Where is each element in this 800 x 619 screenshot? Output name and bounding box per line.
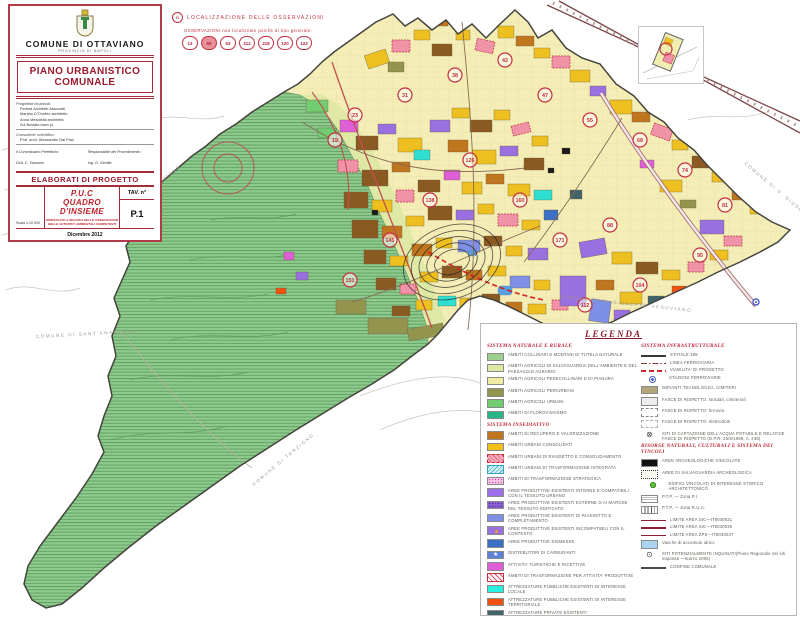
legend-swatch	[487, 364, 504, 373]
observation-marker: 138	[423, 193, 437, 207]
svg-text:19: 19	[332, 138, 338, 144]
legend-item: AMBITI AGRICOLI PEDECOLLINARI E DI PIANU…	[487, 376, 637, 385]
observation-marker: 47	[538, 88, 552, 102]
svg-text:81: 81	[722, 203, 728, 209]
legend-panel: LEGENDA SISTEMA NATURALE E RURALEAMBITI …	[480, 323, 797, 616]
legend-item: ⊗SITI DI CAPTAZIONE DELL'ACQUA POTABILE …	[641, 431, 793, 441]
legend-item: LIMITE AREA SIC—IT8030036	[641, 524, 793, 529]
svg-text:138: 138	[426, 198, 435, 204]
legend-item: Vasche di accumulo idrico	[641, 540, 793, 549]
legend-item-label: AREE PRODUTTIVE ESISTENTI ESTERNE O AI M…	[508, 500, 637, 510]
legend-swatch	[641, 470, 658, 479]
svg-text:88: 88	[607, 223, 613, 229]
legend-swatch	[487, 443, 504, 452]
legend-swatch	[487, 465, 504, 474]
legend-swatch	[487, 399, 504, 408]
legend-item: EDIFICI VINCOLATI DI INTERESSE STORICO A…	[641, 481, 793, 491]
legend-section-title: RISORSE NATURALI, CULTURALI E SISTEMA DE…	[641, 443, 793, 455]
legend-item-label: EDIFICI VINCOLATI DI INTERESSE STORICO A…	[669, 481, 794, 491]
legend-item-label: AMBITI DI RECUPERO E VALORIZZAZIONE	[508, 431, 599, 436]
observations-note: n LOCALIZZAZIONE DELLE OSSERVAZIONI OSSE…	[172, 12, 325, 50]
legend-item: AREE PRODUTTIVE ESISTENTI DI RIASSETTO E…	[487, 513, 637, 523]
legend-item: LINEA FERROVIARIA	[641, 360, 793, 365]
legend-item-label: ATTIVITA' TURISTICHE E RICETTIVE	[508, 562, 585, 567]
legend-item: FASCE DI RISPETTO: ferrovia	[641, 408, 793, 417]
legend-swatch	[487, 488, 504, 497]
legend-item: FASCE DI RISPETTO: stradali, cimiteriali	[641, 397, 793, 406]
legend-item-label: FASCE DI RISPETTO: ferrovia	[662, 408, 724, 413]
legend-item-label: ATTREZZATURE PUBBLICHE ESISTENTI DI INTE…	[508, 584, 637, 594]
legend-item-label: AMBITI COLLINARI E MONTANI DI TUTELA NAT…	[508, 352, 623, 357]
svg-text:68: 68	[637, 138, 643, 144]
rup-name: Ing. G. Gentile	[88, 161, 154, 165]
legend-item: AREE DI SALVAGUARDIA ARCHEOLOGICA	[641, 470, 793, 479]
legend-swatch	[641, 363, 666, 365]
legend-item-label: AMBITI DI TRASFORMAZIONE PER ATTIVITA' P…	[508, 573, 633, 578]
legend-item: AMBITI DI RECUPERO E VALORIZZAZIONE	[487, 431, 637, 440]
observation-marker: 74	[678, 163, 692, 177]
legend-item-label: P.T.P. — Zona P.I.	[662, 494, 698, 499]
observation-marker: 23	[348, 108, 362, 122]
rup-label: Responsabile del Procedimento :	[88, 150, 154, 154]
legend-item-label: AMBITI DI FLOROVIVAISMO	[508, 410, 567, 415]
legend-swatch	[487, 562, 504, 571]
observation-marker: 145	[383, 233, 397, 247]
legend-swatch	[487, 477, 504, 486]
title-block: COMUNE DI OTTAVIANO PROVINCIA DI NAPOLI …	[8, 4, 162, 242]
legend-swatch	[641, 495, 658, 504]
svg-text:126: 126	[466, 158, 475, 164]
observation-marker: 42	[498, 53, 512, 67]
legend-swatch	[641, 370, 666, 372]
legend-swatch	[649, 376, 656, 383]
observation-marker: 38	[448, 68, 462, 82]
legend-item: STATALE 268	[641, 352, 793, 357]
legend-swatch	[641, 420, 658, 429]
observation-chip: 212	[239, 36, 255, 50]
legend-item-label: SITI DI CAPTAZIONE DELL'ACQUA POTABILE E…	[662, 431, 793, 441]
svg-text:74: 74	[682, 168, 688, 174]
tav-number: P.1	[120, 200, 154, 228]
legend-swatch	[487, 353, 504, 362]
legend-item-label: P.T.P. — Zona R.U.A.	[662, 505, 705, 510]
legend-item-label: Vasche di accumulo idrico	[662, 540, 715, 545]
legend-item-label: LIMITE AREA SIC—IT8030021	[670, 517, 732, 522]
legend-swatch	[641, 386, 658, 395]
legend-item: AMBITI DI FLOROVIVAISMO	[487, 410, 637, 419]
legend-item-label: AREE ARCHEOLOGICHE VINCOLATE	[662, 458, 740, 463]
legend-item-label: AMBITI AGRICOLI PEDECOLLINARI E DI PIANU…	[508, 376, 614, 381]
legend-item-label: LIMITE AREA SIC—IT8030036	[670, 524, 732, 529]
svg-text:171: 171	[556, 238, 565, 244]
observation-chip: 13	[182, 36, 198, 50]
plan-title: PIANO URBANISTICO COMUNALE	[17, 61, 153, 93]
legend-item-label: STATALE 268	[670, 352, 698, 357]
legend-item-label: AMBITI DI TRASFORMAZIONE STRATEGICA	[508, 476, 601, 481]
legend-swatch	[487, 411, 504, 420]
scale-label: Scala 1:10.000	[16, 187, 44, 228]
observations-subtitle: OSSERVAZIONI non localizzate poiché di t…	[184, 28, 325, 33]
commune-title: COMUNE DI OTTAVIANO	[16, 39, 154, 49]
legend-swatch	[641, 535, 666, 536]
legend-swatch	[487, 551, 504, 560]
legend-swatch	[487, 514, 504, 523]
observation-marker: 88	[603, 218, 617, 232]
legend-item-label: FASCE DI RISPETTO: stradali, cimiteriali	[662, 397, 746, 402]
legend-item: ⊙SITI POTENZIALMENTE INQUINATI(Piano Reg…	[641, 551, 793, 561]
legend-item: AMBITI AGRICOLI PERIURBANI	[487, 388, 637, 397]
legend-item-label: SITI POTENZIALMENTE INQUINATI(Piano Regi…	[662, 551, 793, 561]
observation-marker: 55	[583, 113, 597, 127]
observation-marker: 160	[513, 193, 527, 207]
svg-text:31: 31	[402, 93, 408, 99]
commune-crest-icon	[16, 8, 154, 38]
legend-item: LIMITE AREA SIC—IT8030021	[641, 517, 793, 522]
legend-swatch	[487, 585, 504, 594]
observation-marker: 31	[398, 88, 412, 102]
legend-swatch	[487, 526, 504, 535]
legend-swatch	[641, 540, 658, 549]
legend-section-title: SISTEMA INSEDIATIVO	[487, 422, 637, 428]
legend-item: IMPIANTI TECNOLOGICI, CIMITERI	[641, 385, 793, 394]
legend-swatch	[641, 397, 658, 406]
legend-item: AREE PRODUTTIVE ESISTENTI ESTERNE O AI M…	[487, 500, 637, 510]
legend-item-label: AMBITI URBANI DI RIASSETTO E CONSOLIDAME…	[508, 454, 621, 459]
legend-item: AREE PRODUTTIVE ESISTENTI INCOMPATIBILI …	[487, 526, 637, 536]
observation-marker: 95	[693, 248, 707, 262]
elaborati-header: ELABORATI DI PROGETTO	[16, 171, 154, 187]
legend-title: LEGENDA	[585, 329, 642, 339]
legend-item-label: AREE DI SALVAGUARDIA ARCHEOLOGICA	[662, 470, 752, 475]
legend-item-label: AMBITI AGRICOLI URBANI	[508, 399, 564, 404]
legend-item-label: AREE PRODUTTIVE ESISTENTI INCOMPATIBILI …	[508, 526, 637, 536]
svg-text:42: 42	[502, 58, 508, 64]
role-name: Prof. arch. Alessandro Dal Piaz	[16, 137, 154, 142]
legend-swatch	[487, 454, 504, 463]
puc-code: P.U.C	[46, 189, 118, 198]
observation-marker: 151	[343, 273, 357, 287]
legend-item: P.T.P. — Zona P.I.	[641, 494, 793, 503]
legend-item: VIABILITA' DI PROGETTO	[641, 367, 793, 372]
legend-swatch	[641, 527, 666, 528]
legend-swatch	[487, 431, 504, 440]
svg-text:47: 47	[542, 93, 548, 99]
observation-marker: 126	[463, 153, 477, 167]
observation-marker: 81	[718, 198, 732, 212]
legend-item-label: AMBITI AGRICOLI PERIURBANI	[508, 388, 574, 393]
svg-text:104: 104	[636, 283, 645, 289]
revision-note: MODIFICATO A SEGUITO DELLE OSSERVAZIONI …	[46, 218, 118, 226]
legend-swatch	[487, 501, 504, 510]
observation-chip: 63	[220, 36, 236, 50]
legend-column-right: SISTEMA INFRASTRUTTURALESTATALE 268LINEA…	[641, 341, 793, 572]
legend-section-title: SISTEMA INFRASTRUTTURALE	[641, 343, 793, 349]
observation-chip: 122	[296, 36, 312, 50]
observation-marker: 19	[328, 133, 342, 147]
legend-swatch	[487, 377, 504, 386]
observations-title: LOCALIZZAZIONE DELLE OSSERVAZIONI	[187, 15, 325, 21]
observation-chip: 60	[201, 36, 217, 50]
legend-item-label: DISTRIBUTORI DI CARBURANTI	[508, 550, 576, 555]
legend-item-label: AREE PRODUTTIVE ESISTENTI DI RIASSETTO E…	[508, 513, 637, 523]
legend-item: DISTRIBUTORI DI CARBURANTI	[487, 550, 637, 559]
legend-item-label: IMPIANTI TECNOLOGICI, CIMITERI	[662, 385, 736, 390]
legend-swatch	[641, 459, 658, 468]
legend-item: AREE ARCHEOLOGICHE VINCOLATE	[641, 458, 793, 467]
svg-text:145: 145	[386, 238, 395, 244]
legend-swatch	[641, 506, 658, 515]
observation-badge-icon: n	[172, 12, 183, 23]
legend-item-label: LINEA FERROVIARIA	[670, 360, 714, 365]
legend-item-label: ATTREZZATURE PRIVATE ESISTENTI	[508, 610, 587, 615]
legend-item: AMBITI URBANI DI RIASSETTO E CONSOLIDAME…	[487, 454, 637, 463]
province-label: PROVINCIA DI NAPOLI	[16, 49, 154, 53]
legend-item: AMBITI URBANI DI TRASFORMAZIONE INTEGRAT…	[487, 465, 637, 474]
legend-item-label: VIABILITA' DI PROGETTO	[670, 367, 724, 372]
legend-item-label: LIMITE AREA ZPS—IT8030037	[670, 532, 733, 537]
svg-text:55: 55	[587, 118, 593, 124]
observation-chip: 218	[258, 36, 274, 50]
legend-item-label: CONFINE COMUNALE	[670, 564, 716, 569]
legend-item: P.T.P. — Zona R.U.A.	[641, 505, 793, 514]
legend-swatch	[487, 539, 504, 548]
svg-text:38: 38	[452, 73, 458, 79]
legend-item-label: AMBITI URBANI CONSOLIDATI	[508, 442, 573, 447]
legend-item: AMBITI AGRICOLI URBANI	[487, 399, 637, 408]
legend-item: AMBITI AGRICOLI DI SALVAGUARDIA DELL'AMB…	[487, 363, 637, 373]
tav-label: TAV. n°	[120, 187, 154, 200]
observation-marker: 68	[633, 133, 647, 147]
legend-item-label: AMBITI AGRICOLI DI SALVAGUARDIA DELL'AMB…	[508, 363, 637, 373]
role-name: Zoi Boviato town pl.	[16, 122, 154, 127]
legend-item: ATTREZZATURE PUBBLICHE ESISTENTI DI INTE…	[487, 597, 637, 607]
commissioner-label: Il Commissario Prefettizio:	[16, 150, 82, 154]
legend-section-title: SISTEMA NATURALE E RURALE	[487, 343, 637, 349]
overview-inset	[638, 26, 704, 84]
svg-text:23: 23	[352, 113, 358, 119]
legend-swatch	[487, 610, 504, 616]
legend-item: AMBITI URBANI CONSOLIDATI	[487, 442, 637, 451]
legend-item-label: AMBITI URBANI DI TRASFORMAZIONE INTEGRAT…	[508, 465, 616, 470]
observation-marker: 104	[633, 278, 647, 292]
svg-text:160: 160	[516, 198, 525, 204]
legend-item: CONFINE COMUNALE	[641, 564, 793, 570]
legend-item-label: ATTREZZATURE PUBBLICHE ESISTENTI DI INTE…	[508, 597, 637, 607]
legend-swatch	[641, 408, 658, 417]
legend-item: AMBITI DI TRASFORMAZIONE STRATEGICA	[487, 476, 637, 485]
legend-item-label: FASCE DI RISPETTO: elettrodotti	[662, 419, 730, 424]
sheet-name: QUADRO D'INSIEME	[46, 198, 118, 216]
map-sheet: 2331384247556874819510411212613814515116…	[0, 0, 800, 619]
legend-item: AMBITI COLLINARI E MONTANI DI TUTELA NAT…	[487, 352, 637, 361]
commissioner-name: Dott. C. Vanzano	[16, 161, 82, 165]
legend-swatch	[641, 567, 666, 570]
legend-swatch: ⊗	[641, 431, 658, 439]
legend-column-left: SISTEMA NATURALE E RURALEAMBITI COLLINAR…	[487, 341, 637, 616]
legend-item: STAZIONI FERROVIARIE	[641, 375, 793, 383]
observation-chip: 120	[277, 36, 293, 50]
observation-marker: 171	[553, 233, 567, 247]
designers-list: Progettisti incaricati:Fedora Architetti…	[16, 101, 154, 145]
svg-text:112: 112	[581, 303, 590, 309]
legend-swatch: ⊙	[641, 551, 658, 559]
legend-item: ATTREZZATURE PRIVATE ESISTENTI	[487, 610, 637, 616]
officials-row: Il Commissario Prefettizio: Dott. C. Van…	[16, 150, 154, 165]
legend-swatch	[487, 388, 504, 397]
legend-swatch	[641, 355, 666, 357]
svg-text:151: 151	[346, 278, 355, 284]
legend-item: LIMITE AREA ZPS—IT8030037	[641, 532, 793, 537]
legend-item: FASCE DI RISPETTO: elettrodotti	[641, 419, 793, 428]
legend-item: AREE PRODUTTIVE ESISTENTI INTERNE E COMP…	[487, 488, 637, 498]
sheet-date: Dicembre 2012	[16, 232, 154, 238]
legend-item: ATTREZZATURE PUBBLICHE ESISTENTI DI INTE…	[487, 584, 637, 594]
observation-number-chips: 136063212218120122	[182, 36, 325, 50]
legend-item: ATTIVITA' TURISTICHE E RICETTIVE	[487, 562, 637, 571]
legend-item: AREE PRODUTTIVE DISMESSE	[487, 539, 637, 548]
legend-item-label: AREE PRODUTTIVE ESISTENTI INTERNE E COMP…	[508, 488, 637, 498]
svg-text:95: 95	[697, 253, 703, 259]
legend-item: AMBITI DI TRASFORMAZIONE PER ATTIVITA' P…	[487, 573, 637, 582]
legend-swatch	[650, 482, 656, 488]
sheet-grid: Scala 1:10.000 P.U.C QUADRO D'INSIEME MO…	[16, 187, 154, 229]
legend-item-label: AREE PRODUTTIVE DISMESSE	[508, 539, 574, 544]
legend-swatch	[641, 520, 666, 521]
legend-swatch	[487, 573, 504, 582]
legend-item-label: STAZIONI FERROVIARIE	[669, 375, 721, 380]
legend-swatch	[487, 598, 504, 607]
